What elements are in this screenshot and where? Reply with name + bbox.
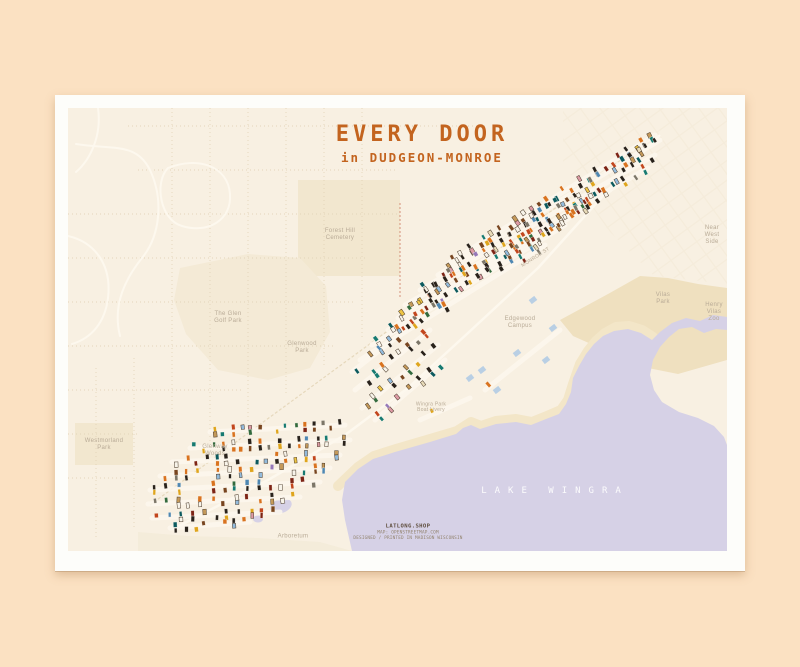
door-marker: [185, 527, 189, 533]
door-marker: [335, 455, 339, 461]
door-marker: [220, 432, 224, 436]
door-marker: [186, 503, 190, 509]
door-marker: [269, 485, 272, 491]
door-marker: [248, 429, 252, 435]
door-marker: [251, 513, 254, 519]
attribution-credit: DESIGNED / PRINTED IN MADISON WISCONSIN: [353, 535, 462, 540]
door-marker: [221, 501, 225, 506]
door-marker: [264, 459, 268, 463]
door-marker: [192, 442, 196, 446]
door-marker: [255, 460, 259, 465]
door-marker: [284, 451, 288, 456]
door-marker: [228, 466, 232, 472]
door-marker: [174, 470, 178, 476]
door-marker: [174, 462, 178, 467]
attribution-brand: LATLONG.SHOP: [353, 523, 462, 529]
door-marker: [194, 527, 198, 532]
door-marker: [313, 427, 316, 431]
door-marker: [224, 461, 228, 466]
map-canvas: EVERY DOOR in DUDGEON-MONROE LAKE WINGRA…: [68, 108, 727, 551]
door-marker: [335, 451, 339, 455]
door-marker: [212, 496, 215, 501]
door-marker: [312, 482, 316, 488]
door-marker: [212, 488, 216, 494]
door-marker: [322, 468, 325, 474]
door-marker: [260, 513, 263, 519]
door-marker: [194, 461, 198, 466]
door-marker: [278, 443, 282, 449]
door-marker: [213, 432, 217, 438]
door-marker: [275, 452, 279, 457]
door-marker: [258, 438, 262, 444]
door-marker: [325, 442, 329, 447]
door-marker: [290, 483, 294, 489]
door-marker: [185, 475, 189, 481]
door-marker: [177, 483, 180, 487]
door-marker: [245, 494, 249, 500]
door-marker: [186, 455, 190, 461]
door-marker: [239, 473, 242, 478]
poster-subtitle: in DUDGEON-MONROE: [336, 150, 508, 165]
door-marker: [231, 424, 235, 430]
door-marker: [202, 521, 206, 526]
door-marker: [175, 475, 178, 481]
door-marker: [237, 509, 240, 514]
door-marker: [235, 500, 239, 505]
door-marker: [153, 490, 156, 495]
door-marker: [203, 509, 207, 515]
cemetery-area: [298, 180, 400, 276]
door-marker: [257, 479, 260, 485]
door-marker: [211, 480, 215, 486]
door-marker: [298, 444, 301, 449]
door-marker: [232, 447, 236, 452]
door-marker: [222, 446, 225, 451]
door-marker: [267, 445, 270, 450]
door-marker: [153, 498, 157, 503]
door-marker: [258, 425, 262, 430]
attribution-source: MAP: OPENSTREETMAP.COM: [353, 530, 462, 535]
door-marker: [196, 468, 199, 473]
door-marker: [260, 508, 264, 512]
door-marker: [305, 457, 308, 463]
door-marker: [292, 470, 296, 476]
door-marker: [177, 502, 181, 508]
door-marker: [249, 446, 252, 452]
door-marker: [216, 474, 220, 479]
door-marker: [241, 425, 245, 430]
door-marker: [163, 476, 167, 482]
door-marker: [213, 426, 217, 431]
door-marker: [164, 483, 168, 489]
door-marker: [290, 478, 294, 484]
door-marker: [275, 459, 279, 464]
door-marker: [173, 522, 177, 527]
door-marker: [284, 423, 287, 428]
door-marker: [291, 492, 295, 497]
door-marker: [297, 436, 301, 442]
door-marker: [191, 516, 195, 522]
door-marker: [174, 528, 177, 533]
door-marker: [305, 436, 309, 440]
door-marker: [154, 513, 158, 518]
door-marker: [250, 467, 254, 473]
door-marker: [216, 468, 219, 472]
door-marker: [185, 469, 188, 475]
door-marker: [270, 492, 274, 497]
door-marker: [303, 428, 307, 433]
door-marker: [280, 464, 284, 470]
door-marker: [164, 497, 168, 503]
door-marker: [280, 498, 285, 504]
door-marker: [288, 443, 291, 448]
door-marker: [325, 435, 328, 440]
door-marker: [232, 518, 235, 523]
door-marker: [177, 497, 181, 503]
door-marker: [284, 458, 288, 463]
door-marker: [278, 438, 282, 443]
door-marker: [303, 422, 306, 427]
door-marker: [259, 472, 262, 477]
attribution: LATLONG.SHOP MAP: OPENSTREETMAP.COM DESI…: [353, 523, 462, 540]
door-marker: [233, 486, 236, 491]
door-marker: [235, 459, 239, 465]
door-marker: [313, 463, 317, 468]
door-marker: [321, 420, 325, 425]
door-marker: [153, 485, 156, 490]
door-marker: [215, 454, 219, 460]
door-marker: [271, 506, 275, 512]
door-marker: [179, 511, 182, 516]
door-marker: [303, 470, 306, 475]
door-marker: [248, 438, 252, 444]
door-marker: [242, 517, 246, 522]
door-marker: [258, 445, 262, 451]
door-marker: [215, 515, 218, 520]
door-marker: [198, 496, 202, 502]
door-marker: [232, 432, 235, 437]
door-marker: [232, 440, 235, 445]
door-marker: [239, 446, 243, 451]
door-marker: [179, 517, 183, 522]
poster-title-block: EVERY DOOR in DUDGEON-MONROE: [336, 122, 508, 165]
door-marker: [294, 457, 297, 463]
poster-page: { "poster": { "title": "EVERY DOOR", "su…: [0, 0, 800, 667]
door-marker: [329, 425, 332, 430]
door-marker: [213, 442, 216, 447]
door-marker: [279, 485, 283, 491]
door-marker: [246, 486, 249, 491]
map-artwork: [68, 108, 727, 551]
door-marker: [235, 495, 239, 501]
door-marker: [191, 511, 195, 517]
door-marker: [343, 441, 346, 447]
door-marker: [238, 466, 242, 471]
door-marker: [259, 499, 262, 504]
door-marker: [223, 487, 227, 492]
door-marker: [224, 509, 228, 514]
door-marker: [300, 476, 304, 482]
door-marker: [232, 523, 236, 528]
door-marker: [305, 444, 308, 448]
door-marker: [270, 464, 274, 469]
door-marker: [313, 456, 317, 461]
door-marker: [271, 499, 274, 505]
poster-mat: EVERY DOOR in DUDGEON-MONROE LAKE WINGRA…: [55, 95, 745, 571]
door-marker: [245, 480, 249, 486]
door-marker: [229, 474, 232, 479]
door-marker: [216, 461, 220, 466]
westmorland-area: [75, 423, 133, 465]
door-marker: [232, 481, 235, 486]
door-marker: [317, 442, 320, 447]
lake-wingra-label: LAKE WINGRA: [481, 486, 629, 496]
door-marker: [205, 454, 209, 459]
door-marker: [198, 502, 201, 507]
door-marker: [314, 469, 317, 474]
door-marker: [168, 512, 171, 517]
door-marker: [342, 435, 345, 440]
door-marker: [276, 429, 279, 434]
door-marker: [338, 419, 342, 425]
door-marker: [202, 448, 205, 453]
door-marker: [257, 485, 261, 490]
door-marker: [312, 421, 315, 426]
door-marker: [295, 423, 298, 428]
door-marker: [222, 441, 225, 446]
door-marker: [317, 436, 320, 441]
door-marker: [304, 450, 307, 456]
door-marker: [223, 519, 227, 524]
door-marker: [224, 453, 228, 459]
door-marker: [178, 489, 181, 495]
page-title: EVERY DOOR: [336, 122, 508, 147]
